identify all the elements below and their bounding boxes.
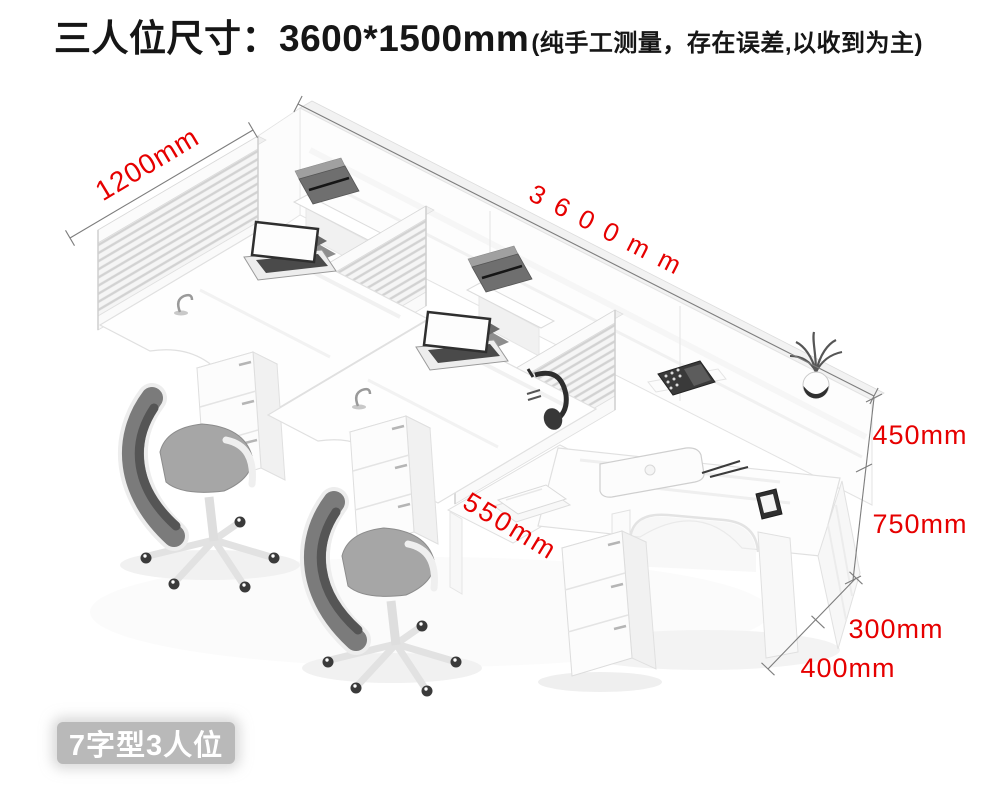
shape-type-badge: 7字型3人位 (57, 722, 235, 764)
dim-label-450: 450mm (872, 420, 967, 450)
workstation-illustration: 1200mm 3600mm 550mm 450mm 750mm 300mm 40… (0, 0, 990, 801)
dim-label-300: 300mm (848, 614, 943, 644)
floor-shadows (90, 550, 840, 692)
product-dimension-image: 三人位尺寸：3600*1500mm (纯手工测量，存在误差,以收到为主) (0, 0, 990, 801)
shape-type-label: 7字型3人位 (69, 722, 223, 764)
dim-label-750: 750mm (872, 509, 967, 539)
drawer-cabinet-3 (562, 531, 656, 676)
dim-label-400: 400mm (800, 653, 895, 683)
